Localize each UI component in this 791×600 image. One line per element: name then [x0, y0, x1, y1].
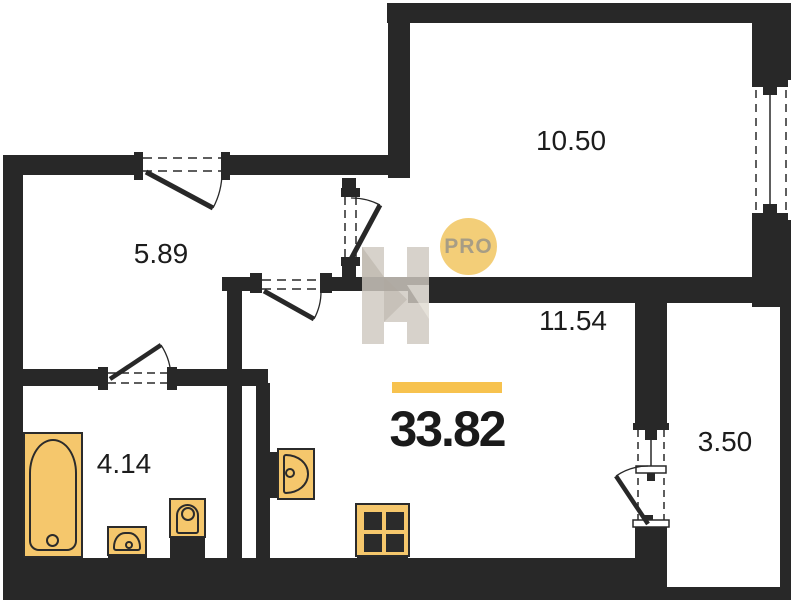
pro-badge: PRO: [440, 218, 497, 275]
living-door-leaf: [264, 291, 314, 319]
kitchen-sink-drain: [285, 468, 295, 478]
room-area-label-hallway: 5.89: [111, 239, 211, 268]
entry-door-jamb-left: [134, 152, 143, 180]
hall-door-jamb-top: [341, 188, 360, 197]
wall-balcony-bottom: [635, 587, 791, 600]
room-area-label-balcony: 3.50: [675, 427, 775, 456]
toilet-icon: [169, 498, 206, 538]
window-mullion-top: [763, 85, 777, 95]
stove-icon: [355, 503, 410, 557]
bathtub-drain: [46, 534, 59, 547]
balcony-unit-notch: [647, 473, 655, 481]
balcony-unit-sill: [633, 520, 669, 527]
toilet-tank: [170, 537, 205, 558]
wall-bath-top-b: [177, 369, 268, 386]
room-area-label-bathroom: 4.14: [74, 449, 174, 478]
wall-bath-right: [227, 277, 242, 558]
living-door-jamb-right: [320, 273, 332, 293]
balcony-door-leaf: [616, 476, 648, 524]
stove-burner: [386, 534, 404, 552]
wall-room-bottom: [408, 277, 752, 303]
wall-balcony-right: [780, 307, 791, 600]
washbasin-drain: [125, 541, 133, 549]
floor-plan: PRO 10.50 5.89 11.54 4.14 3.50 33.82: [0, 0, 791, 600]
entry-door-leaf: [146, 172, 213, 208]
watermark-h-logo: [362, 247, 429, 344]
wall-living-left: [256, 383, 270, 558]
total-area-accent-bar: [392, 382, 502, 393]
pro-badge-text: PRO: [444, 235, 493, 259]
stove-burner: [364, 534, 382, 552]
living-door-swing: [314, 291, 321, 319]
toilet-flush: [181, 507, 195, 521]
wall-bath-top-a: [23, 369, 98, 386]
wall-right-mid: [752, 220, 791, 307]
wall-left: [3, 155, 23, 600]
bath-door-jamb-left: [98, 367, 108, 390]
entry-door-swing: [213, 172, 222, 208]
balcony-unit-handle: [645, 430, 657, 440]
bath-door-leaf: [110, 345, 161, 379]
wall-bottom: [3, 558, 667, 600]
kitchen-sink-icon: [277, 448, 315, 500]
room-area-label-living-kitchen: 11.54: [523, 306, 623, 335]
door-window-linework: [108, 90, 786, 527]
wall-balcony-divider-bottom: [635, 527, 667, 588]
wall-hall-a: [222, 277, 250, 291]
washbasin-icon: [107, 526, 147, 556]
wall-room-left: [388, 3, 410, 178]
stove-burner: [364, 512, 382, 530]
living-door-jamb-left: [250, 273, 262, 293]
wall-balcony-divider-top: [635, 303, 667, 423]
total-area-value: 33.82: [372, 400, 522, 458]
balcony-unit-head: [633, 423, 669, 430]
room-area-label-top-room: 10.50: [521, 126, 621, 155]
wall-top: [387, 3, 791, 23]
washbasin-base: [108, 555, 147, 562]
window-sill: [752, 213, 788, 220]
bath-door-jamb-right: [167, 367, 177, 390]
wall-entry-right: [230, 155, 410, 175]
wall-right-upper: [752, 3, 791, 80]
window-mullion-bottom: [763, 204, 777, 214]
stove-burner: [386, 512, 404, 530]
